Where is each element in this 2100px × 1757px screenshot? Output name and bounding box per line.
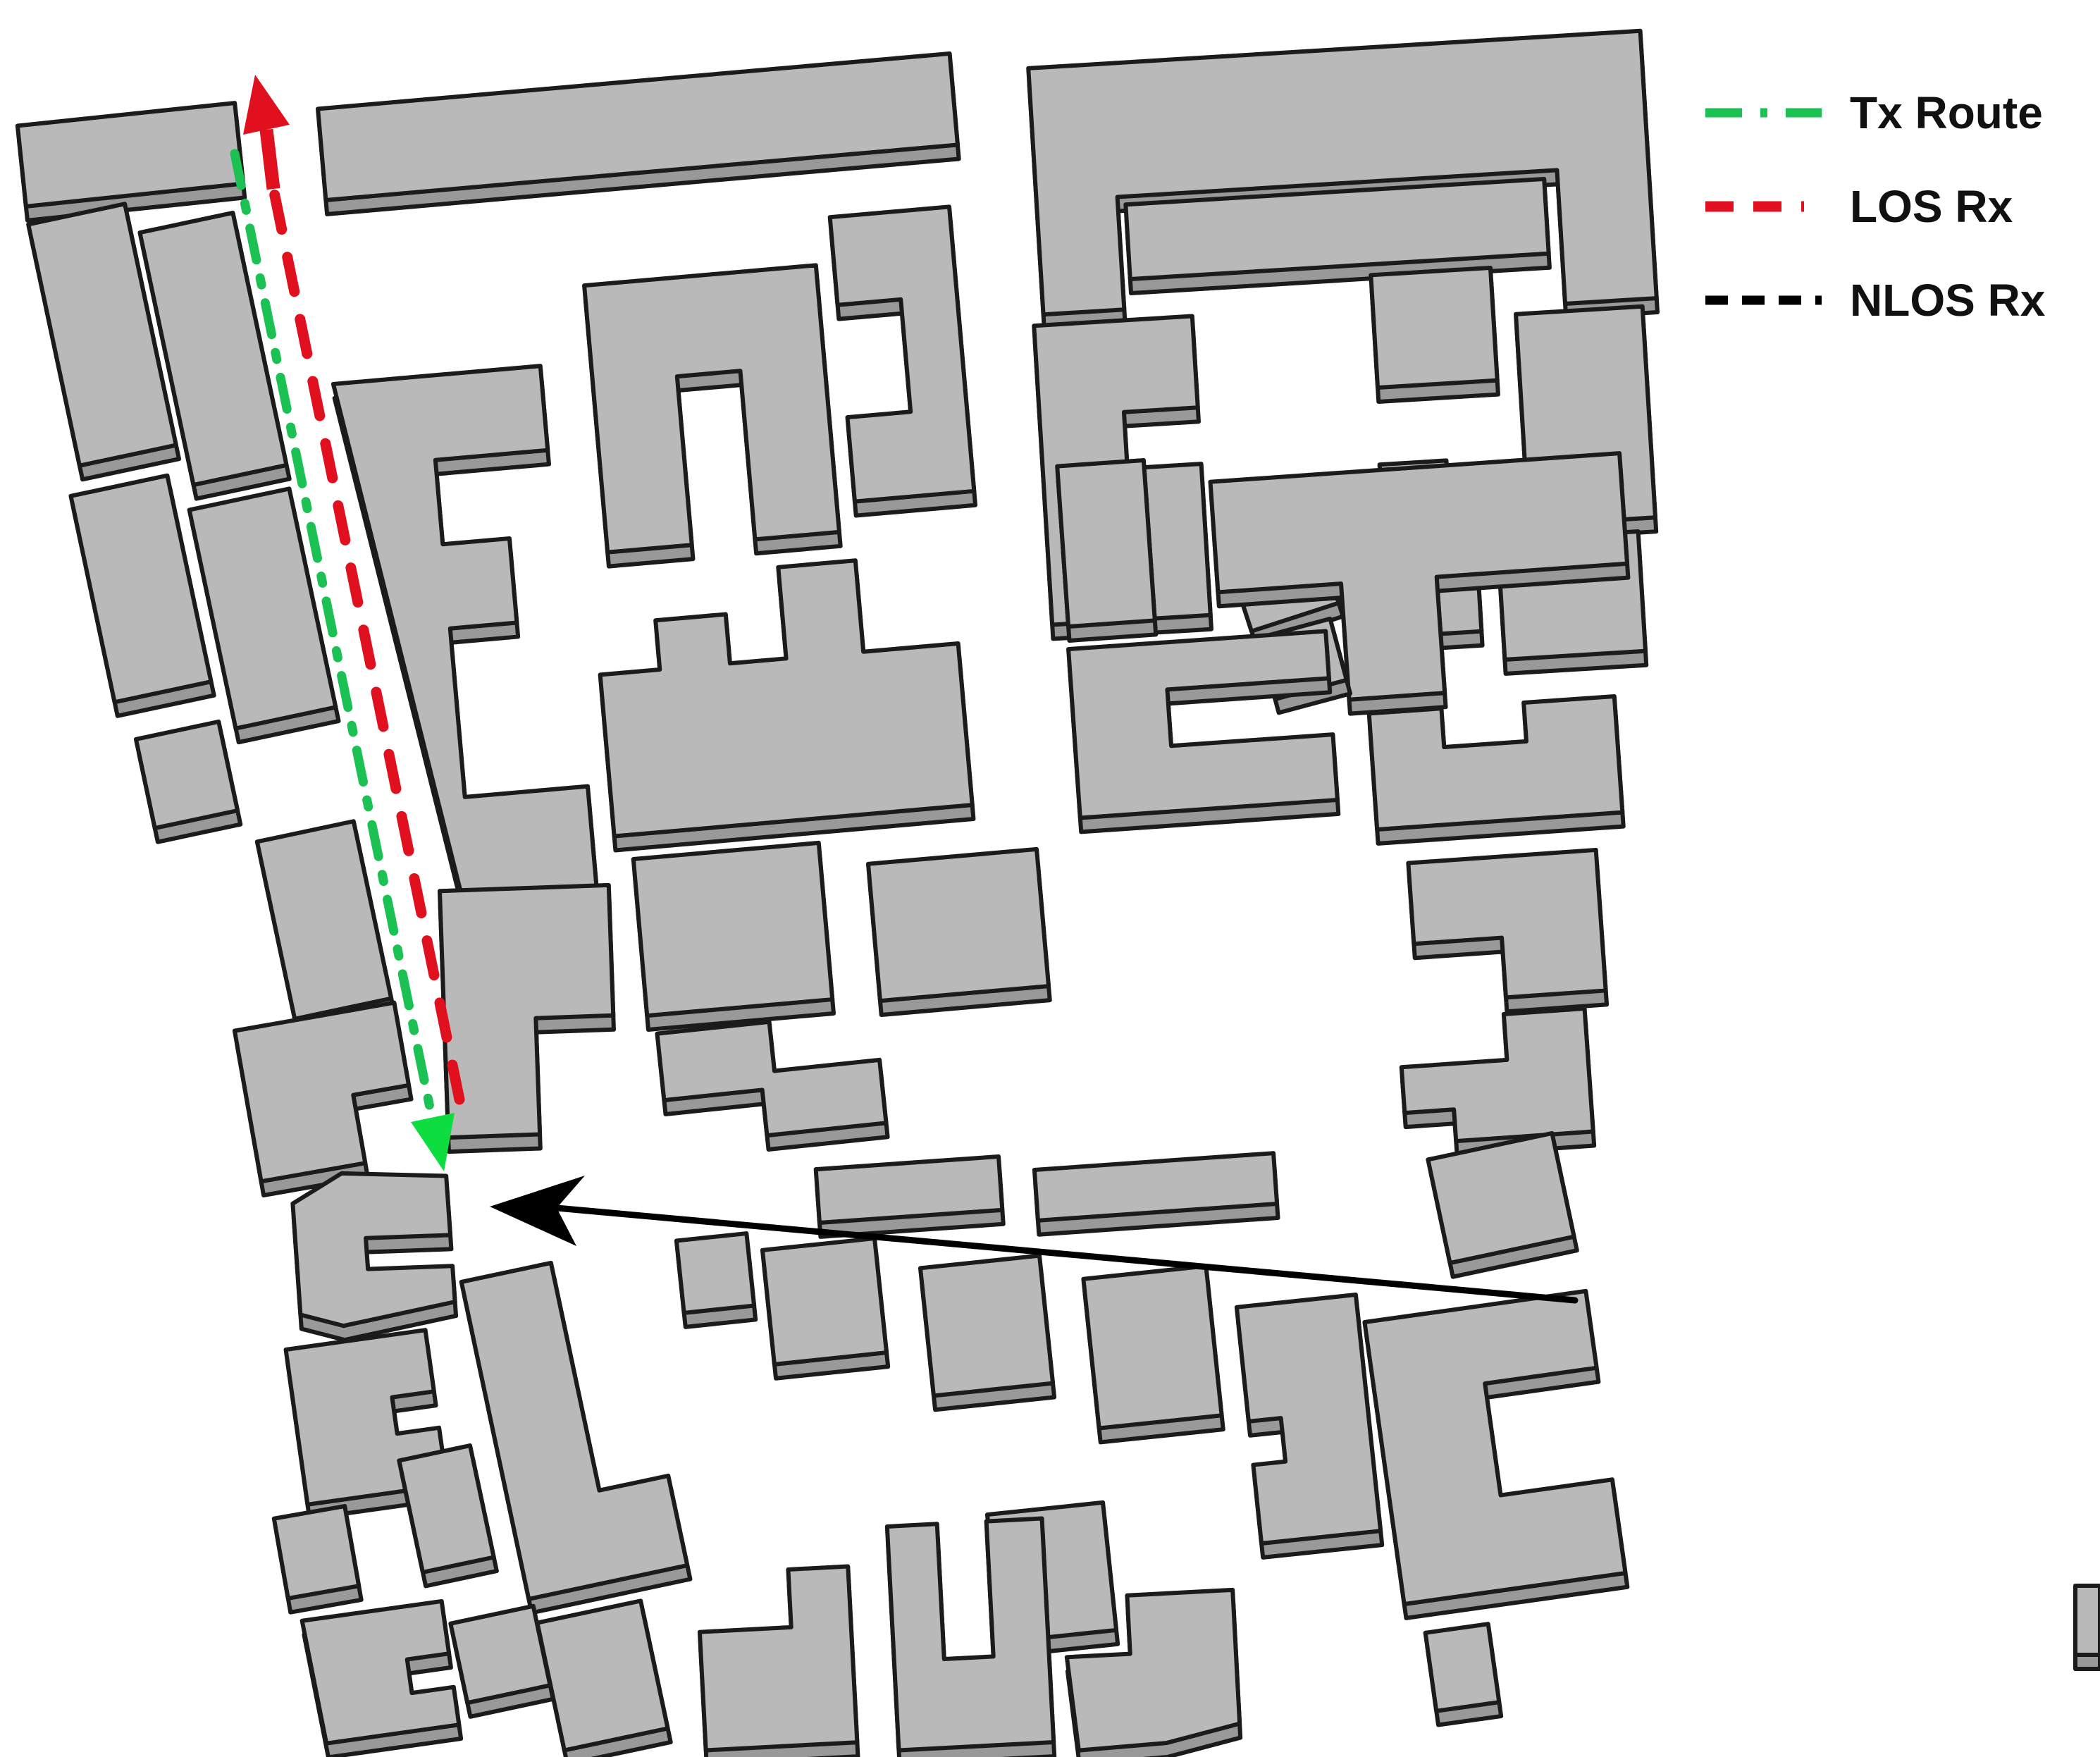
building-roof	[816, 1157, 1003, 1223]
building	[762, 1238, 888, 1379]
building	[697, 1567, 858, 1757]
legend-item-nlos-rx: NLOS Rx	[1705, 275, 2046, 326]
building	[440, 885, 618, 1152]
building	[1237, 1295, 1382, 1558]
building	[677, 1233, 755, 1327]
building	[318, 54, 959, 214]
building	[1408, 850, 1607, 1018]
building-roof	[274, 1506, 359, 1598]
building	[1057, 460, 1156, 641]
building-roof	[584, 265, 839, 552]
los-rx-line-arrowhead	[243, 75, 290, 135]
building-roof	[257, 821, 391, 1018]
legend-item-los-rx: LOS Rx	[1705, 181, 2013, 232]
building-roof	[440, 885, 617, 1138]
building-roof	[592, 552, 972, 836]
building-roof	[677, 1233, 754, 1313]
building-roof	[657, 1011, 886, 1146]
tx-route-label: Tx Route	[1850, 87, 2043, 138]
building	[1398, 1009, 1594, 1159]
building-roof	[537, 1601, 667, 1750]
building-roof	[1237, 1295, 1381, 1543]
building-roof	[1057, 460, 1155, 627]
los-rx-line-shaft	[266, 130, 273, 189]
building	[657, 1011, 887, 1159]
building-roof	[1426, 1624, 1500, 1710]
building	[830, 206, 975, 515]
building	[868, 849, 1050, 1015]
building	[274, 1506, 362, 1613]
building-roof	[136, 722, 237, 828]
building-roof	[762, 1238, 887, 1364]
building-roof	[634, 843, 832, 1016]
building-roof	[399, 1445, 493, 1572]
building	[18, 103, 245, 221]
tx-route-line-arrowhead	[411, 1113, 455, 1171]
building	[1364, 1291, 1627, 1618]
building	[235, 1003, 424, 1195]
building-roof	[868, 849, 1049, 1001]
map-canvas: Tx Route LOS Rx NLOS Rx	[0, 0, 2100, 1757]
building-roof	[1028, 31, 1657, 335]
building	[1426, 1624, 1501, 1725]
building	[2075, 1586, 2100, 1669]
building-roof	[450, 1606, 550, 1703]
figure-container: Tx Route LOS Rx NLOS Rx	[0, 0, 2100, 1757]
legend: Tx Route LOS Rx NLOS Rx	[1705, 87, 2046, 326]
building	[302, 1601, 461, 1757]
building-roof	[1369, 696, 1623, 830]
nlos-rx-label: NLOS Rx	[1850, 275, 2046, 326]
building	[1068, 631, 1338, 832]
building-roof	[2075, 1586, 2100, 1655]
building-roof	[1083, 1266, 1221, 1428]
building	[634, 843, 834, 1030]
building	[291, 1166, 457, 1343]
building-roof	[302, 1601, 459, 1744]
buildings-layer	[18, 31, 2100, 1757]
building-roof	[1364, 1291, 1625, 1604]
building-roof	[920, 1256, 1053, 1396]
building	[920, 1256, 1054, 1410]
building	[1428, 1133, 1576, 1277]
building	[1034, 1153, 1278, 1234]
building-roof	[462, 1248, 688, 1599]
building	[537, 1601, 670, 1757]
building	[816, 1157, 1003, 1237]
building-roof	[887, 1518, 1054, 1750]
building-roof	[697, 1567, 858, 1751]
building	[887, 1518, 1054, 1757]
building	[190, 488, 339, 742]
los-rx-label: LOS Rx	[1850, 181, 2013, 232]
legend-item-tx-route: Tx Route	[1705, 87, 2043, 138]
building-roof	[1068, 631, 1338, 818]
building-roof	[1371, 268, 1497, 388]
building	[399, 1445, 497, 1586]
building	[136, 722, 240, 842]
building	[1369, 696, 1624, 844]
building	[584, 265, 841, 566]
building	[1371, 268, 1498, 402]
building-roof	[1408, 850, 1605, 1004]
building	[1083, 1266, 1223, 1442]
building	[592, 552, 973, 850]
building-roof	[830, 206, 975, 501]
